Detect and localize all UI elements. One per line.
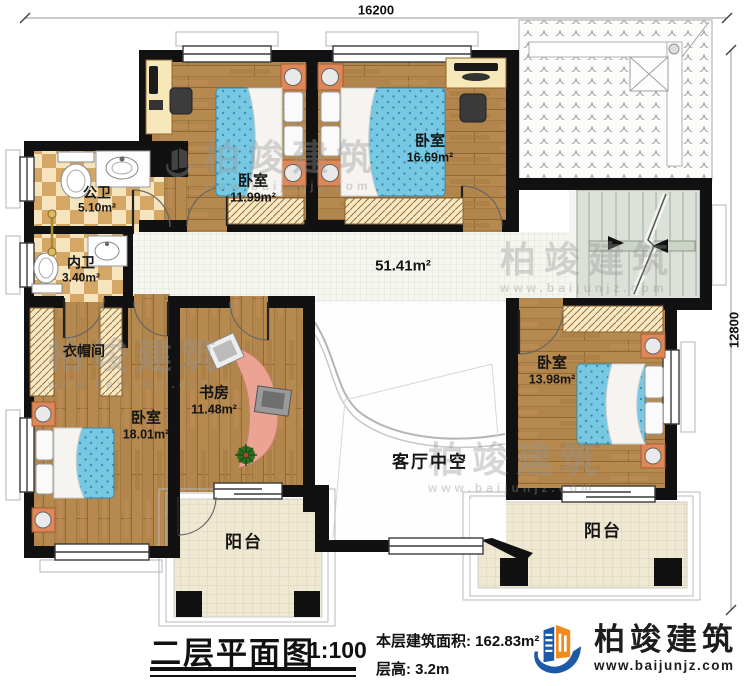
floorplan-drawing <box>0 0 750 686</box>
sink-icon <box>96 151 150 187</box>
sink-icon <box>88 236 127 266</box>
floorplan-page: 16200 12800 柏竣建筑 www.baijunjz.com 柏竣建筑 w… <box>0 0 750 686</box>
roof-tiles-icon <box>519 20 712 180</box>
monitor-icon <box>254 386 291 416</box>
stairs-icon <box>569 190 700 300</box>
toilet-icon <box>58 152 94 198</box>
